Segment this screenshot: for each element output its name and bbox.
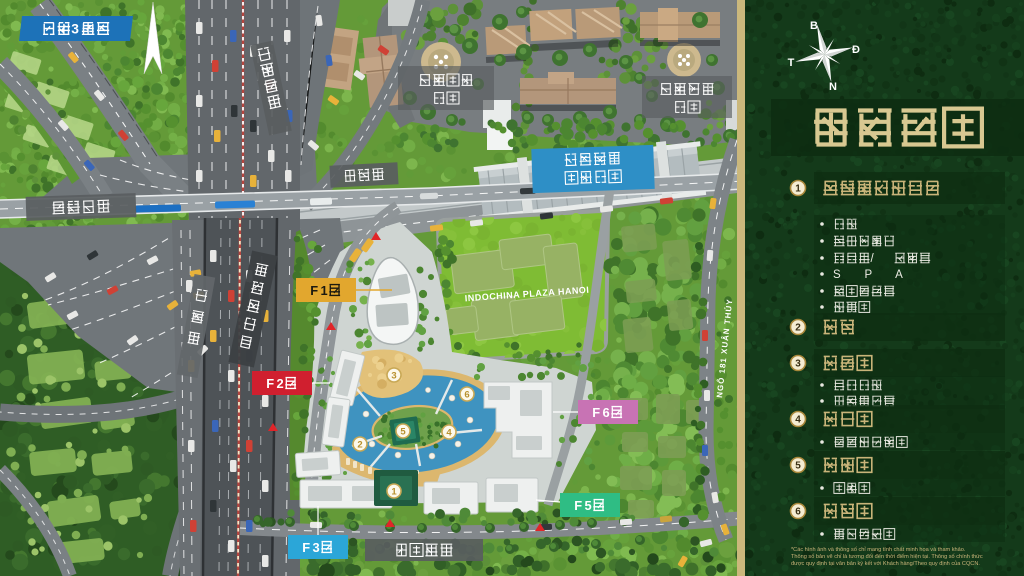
svg-text:T: T (788, 57, 795, 69)
svg-text:3: 3 (71, 22, 79, 37)
svg-text:6: 6 (795, 507, 801, 518)
svg-text:5: 5 (400, 426, 406, 437)
svg-text:3: 3 (795, 359, 801, 370)
svg-text:2: 2 (357, 439, 362, 450)
svg-text:*Các hình ảnh và thông số chỉ: *Các hình ảnh và thông số chỉ mang tính … (791, 546, 966, 553)
svg-text:được quy định tại văn bản ký k: được quy định tại văn bản ký kết với Khá… (791, 560, 980, 567)
svg-text:3: 3 (391, 370, 396, 381)
svg-text:6: 6 (464, 389, 469, 400)
svg-text:B: B (810, 20, 818, 32)
svg-text:Thông số bản vẽ chỉ là tương đ: Thông số bản vẽ chỉ là tương đối đến thờ… (791, 553, 983, 560)
svg-text:1: 1 (391, 486, 397, 497)
svg-text:5: 5 (795, 461, 801, 472)
svg-text:1: 1 (795, 184, 801, 195)
svg-text:4: 4 (795, 415, 801, 426)
svg-text:N: N (829, 81, 837, 93)
svg-text:2: 2 (795, 323, 801, 334)
svg-text:Đ: Đ (852, 44, 860, 56)
svg-text:4: 4 (446, 427, 452, 438)
